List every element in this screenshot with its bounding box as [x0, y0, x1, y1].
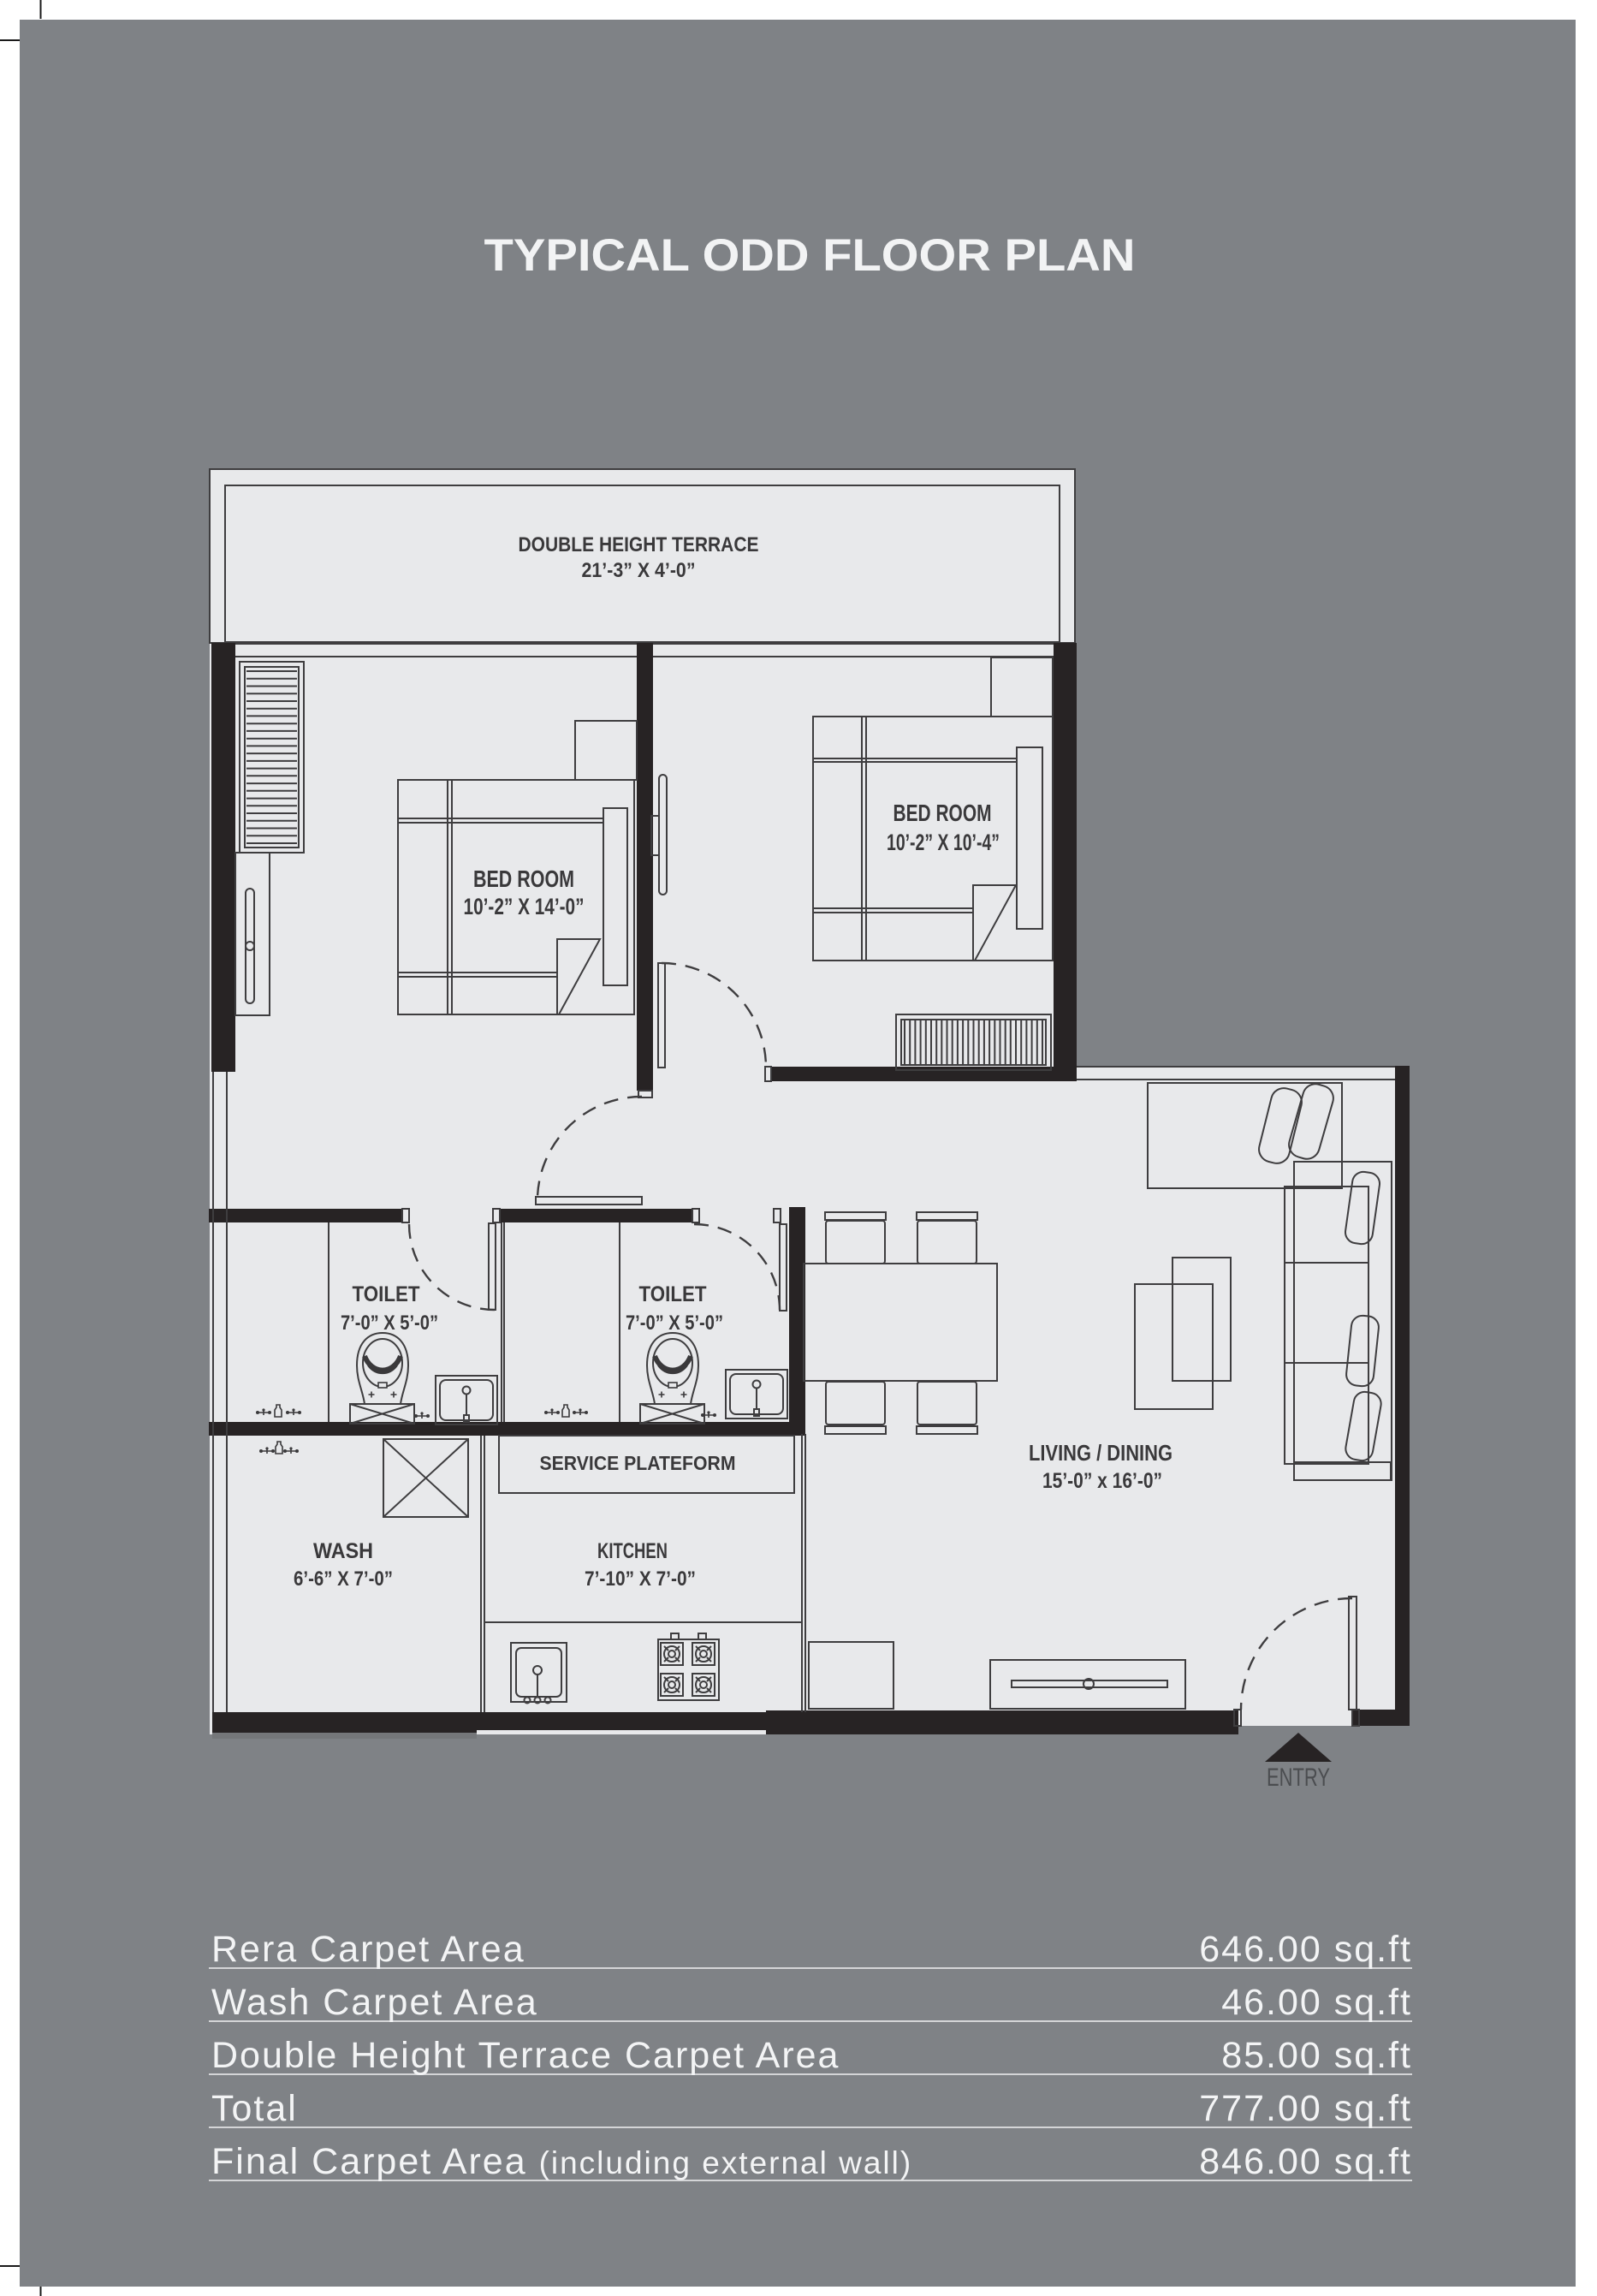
svg-text:15’-0” x 16’-0”: 15’-0” x 16’-0”: [1042, 1469, 1162, 1493]
svg-text:ENTRY: ENTRY: [1267, 1764, 1330, 1792]
svg-text:85.00 sq.ft: 85.00 sq.ft: [1221, 2035, 1412, 2076]
svg-text:BED ROOM: BED ROOM: [893, 800, 992, 826]
svg-text:6’-6” X 7’-0”: 6’-6” X 7’-0”: [294, 1567, 393, 1591]
svg-text:WASH: WASH: [313, 1539, 373, 1563]
svg-text:BED ROOM: BED ROOM: [473, 865, 574, 892]
svg-text:7’-0” X 5’-0”: 7’-0” X 5’-0”: [626, 1312, 723, 1335]
svg-text:Double Height Terrace Carpet A: Double Height Terrace Carpet Area: [211, 2035, 840, 2076]
svg-text:SERVICE PLATEFORM: SERVICE PLATEFORM: [540, 1452, 736, 1474]
svg-text:TOILET: TOILET: [639, 1282, 707, 1306]
svg-text:LIVING / DINING: LIVING / DINING: [1029, 1440, 1173, 1466]
svg-text:21’-3” X 4’-0”: 21’-3” X 4’-0”: [582, 559, 696, 582]
svg-text:10’-2” X 10’-4”: 10’-2” X 10’-4”: [887, 830, 1000, 855]
svg-text:7’-0” X 5’-0”: 7’-0” X 5’-0”: [341, 1312, 438, 1335]
svg-text:Wash Carpet Area: Wash Carpet Area: [211, 1982, 538, 2023]
svg-text:777.00 sq.ft: 777.00 sq.ft: [1199, 2088, 1412, 2129]
svg-text:46.00 sq.ft: 46.00 sq.ft: [1221, 1982, 1412, 2023]
svg-text:646.00 sq.ft: 646.00 sq.ft: [1199, 1929, 1412, 1970]
svg-text:TOILET: TOILET: [353, 1282, 420, 1306]
svg-text:7’-10” X 7’-0”: 7’-10” X 7’-0”: [585, 1567, 696, 1591]
svg-text:DOUBLE HEIGHT TERRACE: DOUBLE HEIGHT TERRACE: [519, 533, 759, 556]
svg-text:Final Carpet Area (including e: Final Carpet Area (including external wa…: [211, 2141, 912, 2182]
svg-text:846.00 sq.ft: 846.00 sq.ft: [1199, 2141, 1412, 2182]
svg-text:Rera Carpet Area: Rera Carpet Area: [211, 1929, 525, 1970]
svg-text:TYPICAL ODD FLOOR PLAN: TYPICAL ODD FLOOR PLAN: [484, 230, 1136, 281]
svg-text:KITCHEN: KITCHEN: [597, 1539, 668, 1563]
svg-text:Total: Total: [211, 2088, 298, 2129]
svg-text:10’-2” X 14’-0”: 10’-2” X 14’-0”: [464, 894, 585, 919]
